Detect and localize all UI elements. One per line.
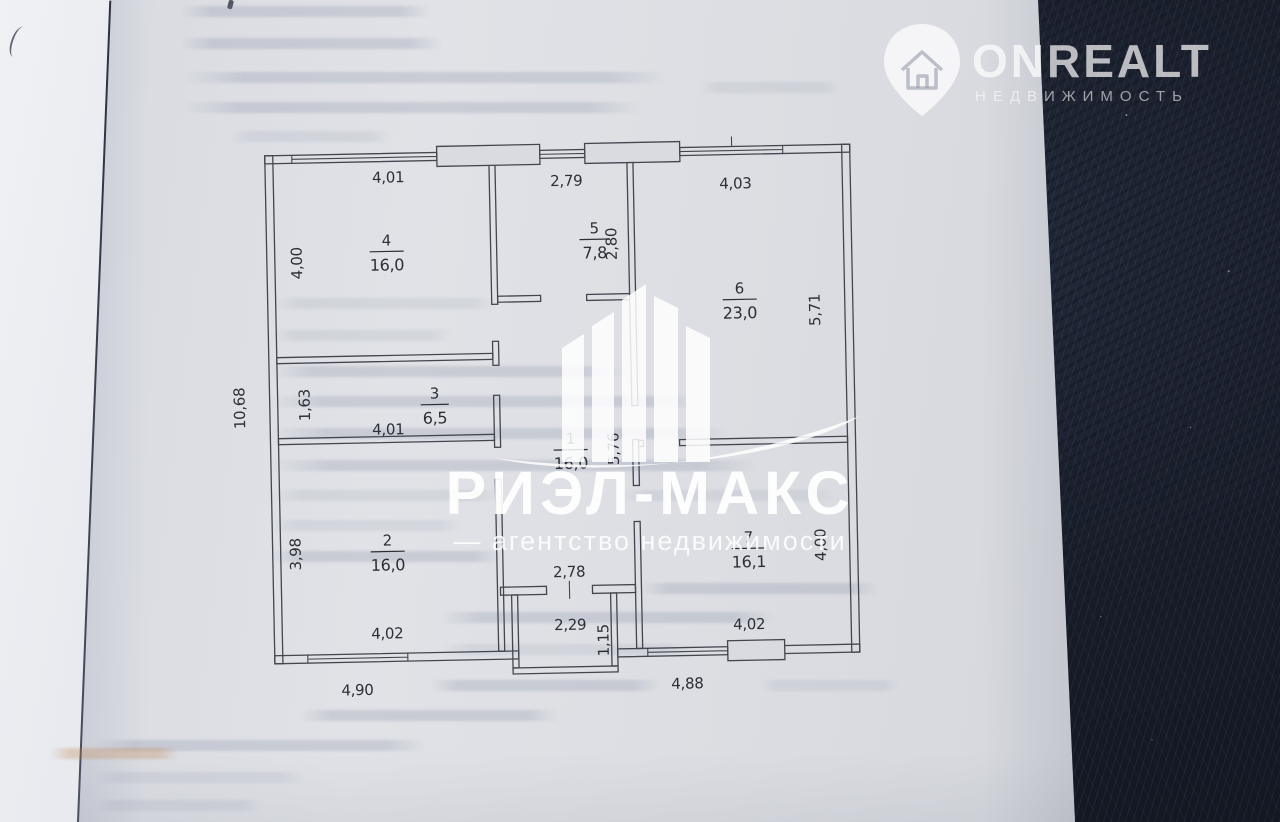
bleedthrough-line — [95, 800, 263, 811]
dim-entrance-door: 2,29 — [554, 616, 587, 635]
bleedthrough-line — [185, 102, 640, 113]
watermark-subtitle-text: — агентство недвижимости — [438, 526, 862, 557]
dim-room5-width: 2,79 — [550, 172, 583, 191]
dim-exterior-bottom-left: 4,90 — [341, 681, 374, 700]
room-number: 4 — [381, 231, 391, 249]
room-3-label: 3 6,5 — [420, 384, 449, 428]
watermark-brand-text: ONREALT — [972, 34, 1212, 88]
dim-exterior-left: 10,68 — [230, 388, 249, 430]
bleedthrough-line-orange — [50, 748, 178, 759]
dim-room7-width: 4,02 — [733, 615, 766, 634]
map-pin-house-icon — [880, 22, 964, 118]
watermark-subtitle-text: НЕДВИЖИМОСТЬ — [975, 88, 1189, 105]
dim-room4-height: 4,00 — [288, 247, 307, 280]
watermark-brand-text: РИЭЛ-МАКС — [438, 458, 862, 528]
dim-room2-width: 4,02 — [371, 624, 404, 643]
dim-room3-width: 4,01 — [372, 420, 405, 439]
room-area: 23,0 — [723, 303, 758, 323]
room-4-label: 4 16,0 — [369, 231, 404, 275]
bleedthrough-line — [185, 72, 665, 83]
dim-room6-width: 4,03 — [719, 174, 752, 193]
bleedthrough-line — [95, 772, 305, 783]
dim-room2-height: 3,98 — [286, 538, 305, 571]
dim-room4-width: 4,01 — [372, 168, 405, 187]
room-number: 5 — [589, 219, 599, 237]
dim-room6-height: 5,71 — [806, 294, 825, 327]
bleedthrough-line — [300, 710, 558, 721]
room-6-label: 6 23,0 — [722, 279, 757, 323]
room-number: 6 — [735, 279, 745, 297]
room-area: 6,5 — [423, 408, 448, 427]
bleedthrough-line — [700, 82, 840, 93]
bleedthrough-line — [180, 38, 442, 49]
room-number: 2 — [383, 531, 393, 549]
room-number: 3 — [430, 384, 440, 402]
dim-room1-width: 2,78 — [553, 563, 586, 582]
dim-room3-height: 1,63 — [295, 389, 314, 422]
photographed-document-scene: 4,01 2,79 4,03 4,00 2,80 5,71 1,63 4,01 … — [0, 0, 1280, 822]
room-2-label: 2 16,0 — [370, 531, 405, 575]
dim-porch-depth: 1,15 — [594, 624, 613, 657]
room-area: 7,8 — [582, 243, 607, 262]
dim-exterior-bottom-right: 4,88 — [671, 674, 704, 693]
room-area: 16,0 — [370, 255, 405, 275]
bleedthrough-line — [180, 6, 430, 17]
room-area: 16,0 — [371, 555, 406, 575]
